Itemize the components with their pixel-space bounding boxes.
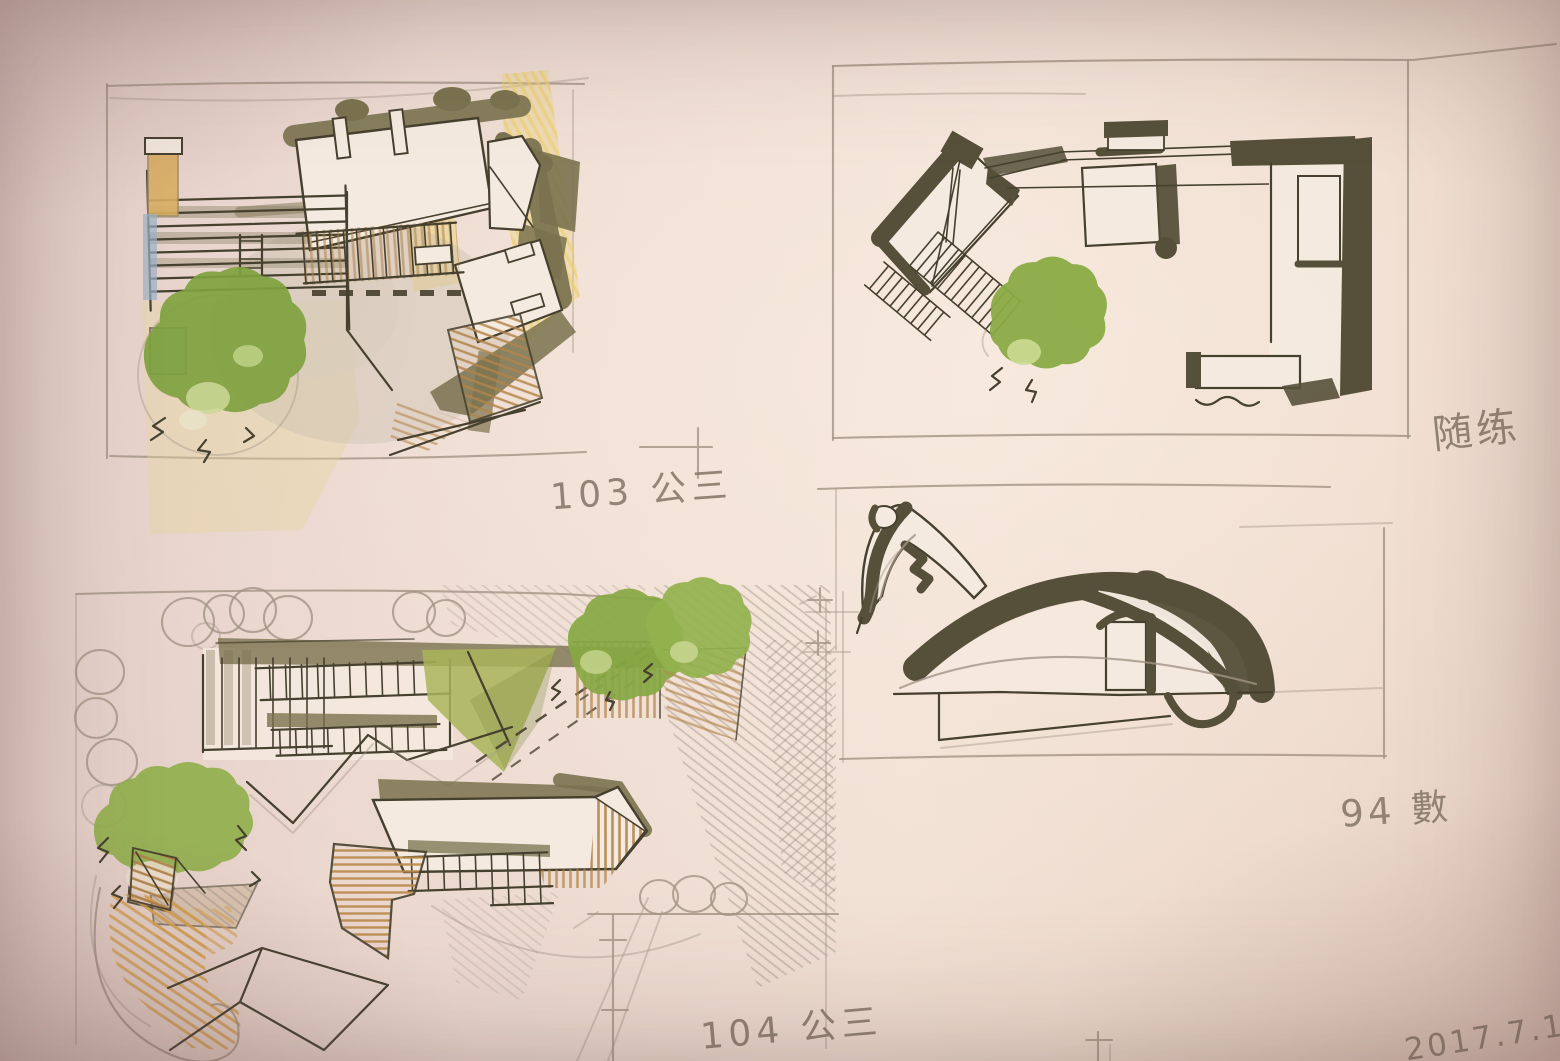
sketches-drawing [0, 0, 1560, 1061]
dome-mass [894, 567, 1382, 748]
label-94: 94 數 [1338, 776, 1453, 838]
right-block [1186, 136, 1372, 406]
orange-column [148, 152, 178, 216]
blue-strip [143, 214, 157, 300]
sketch-94-massing [806, 484, 1392, 759]
sketchbook-photo: 103 公三 随练 94 數 104 公三 2017.7.1 [0, 0, 1560, 1061]
middle-square [1082, 164, 1180, 259]
label-practice: 随练 [1429, 394, 1523, 461]
tree-icon [982, 256, 1106, 402]
wood-deck [296, 220, 463, 285]
sketch-practice-plan [833, 44, 1556, 440]
